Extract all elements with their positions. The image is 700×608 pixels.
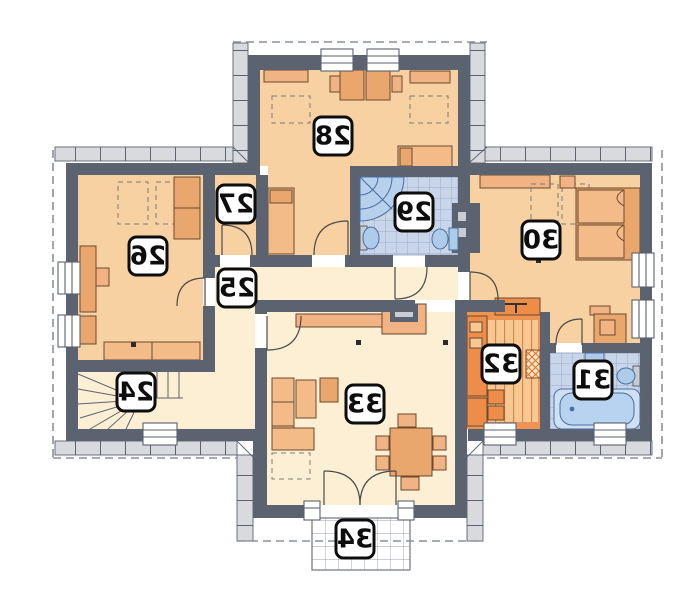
room-label-28: 28 (313, 116, 354, 157)
window-31 (594, 423, 626, 445)
room-label-30: 30 (521, 220, 562, 261)
terrace-door-post-left (304, 501, 320, 520)
window-28-right (367, 49, 399, 71)
room-number-33: 33 (347, 391, 383, 417)
room-label-25: 25 (217, 268, 258, 309)
room-label-29: 29 (394, 192, 435, 233)
window-28-left (321, 49, 353, 71)
room-label-34: 34 (335, 519, 376, 560)
room-number-31: 31 (575, 367, 611, 393)
basin-31 (617, 368, 635, 384)
basin-29 (363, 227, 379, 249)
room-label-32: 32 (481, 344, 522, 385)
toilet-29-tank (449, 228, 458, 250)
window-30-upper (632, 253, 654, 287)
room-number-29: 29 (396, 199, 432, 225)
room-label-24: 24 (116, 372, 157, 413)
room-number-24: 24 (118, 379, 154, 405)
window-30-lower (632, 300, 654, 338)
room-label-26: 26 (128, 236, 169, 277)
window-26-lower (58, 315, 80, 347)
window-26-upper (58, 262, 80, 294)
floor-plan-canvas: 24 25 26 27 28 29 30 31 32 33 34 (0, 0, 700, 608)
room-25-strip-floor (215, 300, 255, 429)
terrace-door-post-right (398, 501, 414, 520)
room-number-27: 27 (218, 191, 254, 217)
room-number-25: 25 (219, 275, 255, 301)
room-number-30: 30 (523, 227, 559, 253)
room-number-28: 28 (315, 123, 351, 149)
room-label-27: 27 (216, 184, 257, 225)
room-label-33: 33 (345, 384, 386, 425)
toilet-29 (432, 229, 448, 249)
floor-plan-drawing (0, 0, 700, 608)
window-24 (143, 423, 177, 445)
window-32 (484, 423, 516, 445)
room-number-26: 26 (130, 243, 166, 269)
room-number-32: 32 (483, 351, 519, 377)
room-label-31: 31 (573, 360, 614, 401)
room-number-34: 34 (337, 526, 373, 552)
